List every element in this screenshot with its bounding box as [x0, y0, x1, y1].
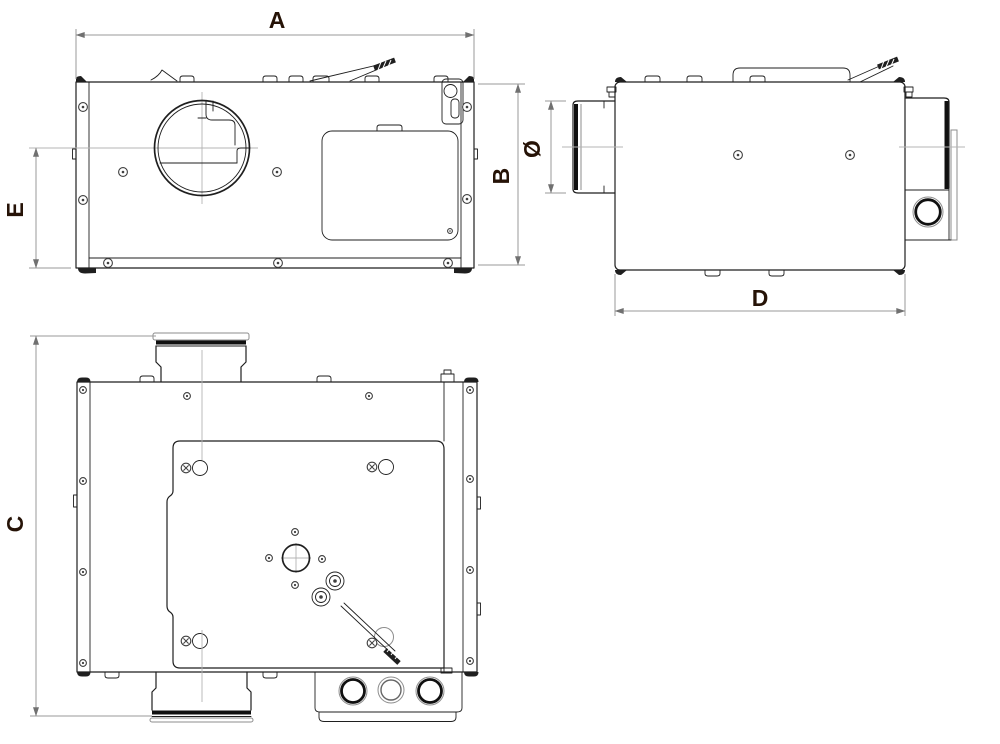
- screw: [184, 393, 191, 400]
- screw: [366, 393, 373, 400]
- screw: [119, 168, 128, 177]
- damper-lever: [848, 59, 898, 82]
- inlet-spigot: [562, 101, 623, 193]
- screw: [80, 569, 87, 576]
- cable-gland: [339, 677, 367, 705]
- hinge-tab: [151, 70, 177, 81]
- bottom-view: C: [2, 333, 481, 722]
- dim-label-e: E: [2, 202, 28, 217]
- screw: [292, 529, 299, 536]
- screw: [292, 582, 299, 589]
- screw: [467, 567, 474, 574]
- screw: [846, 151, 855, 160]
- screw: [80, 660, 87, 667]
- screw: [319, 556, 326, 563]
- screw: [274, 259, 283, 268]
- dim-label-c: C: [2, 516, 28, 533]
- side-body: [607, 76, 913, 276]
- screw: [79, 196, 88, 205]
- foot: [78, 268, 96, 274]
- dim-d: D: [615, 274, 905, 316]
- screw: [79, 103, 88, 112]
- screw: [104, 259, 113, 268]
- dim-a: A: [76, 7, 474, 79]
- screw: [467, 658, 474, 665]
- dim-label-diameter: Ø: [519, 140, 545, 158]
- dim-label-a: A: [269, 7, 286, 33]
- cable-gland: [416, 677, 444, 705]
- outlet-spigot: [899, 98, 965, 240]
- damper-lever: [310, 60, 395, 81]
- cable-gland: [378, 677, 404, 703]
- top-spigot: [153, 333, 249, 382]
- drain-port: [913, 197, 943, 227]
- screw: [266, 555, 273, 562]
- dim-label-d: D: [752, 285, 769, 311]
- screw: [734, 151, 743, 160]
- fan-unit-technical-drawing: A B E: [0, 0, 1000, 744]
- screw: [80, 387, 87, 394]
- dim-label-b: B: [488, 168, 514, 185]
- drawing-sheet: A B E: [0, 0, 1000, 744]
- screw: [467, 476, 474, 483]
- bolt: [441, 374, 454, 382]
- screw: [367, 638, 377, 648]
- dim-diameter: Ø: [519, 101, 566, 193]
- screw: [448, 229, 453, 234]
- screw: [467, 387, 474, 394]
- front-view: A B E: [2, 7, 525, 274]
- screw: [273, 168, 282, 177]
- screw: [444, 259, 453, 268]
- screw: [463, 195, 472, 204]
- side-view: Ø D: [519, 59, 965, 316]
- mounting-feet: [78, 268, 472, 274]
- dim-e: E: [2, 148, 71, 268]
- screw: [463, 103, 472, 112]
- foot: [454, 268, 472, 274]
- terminal-box: [315, 668, 462, 722]
- screw: [80, 478, 87, 485]
- dim-b: B: [478, 84, 525, 265]
- carry-handle: [733, 68, 850, 82]
